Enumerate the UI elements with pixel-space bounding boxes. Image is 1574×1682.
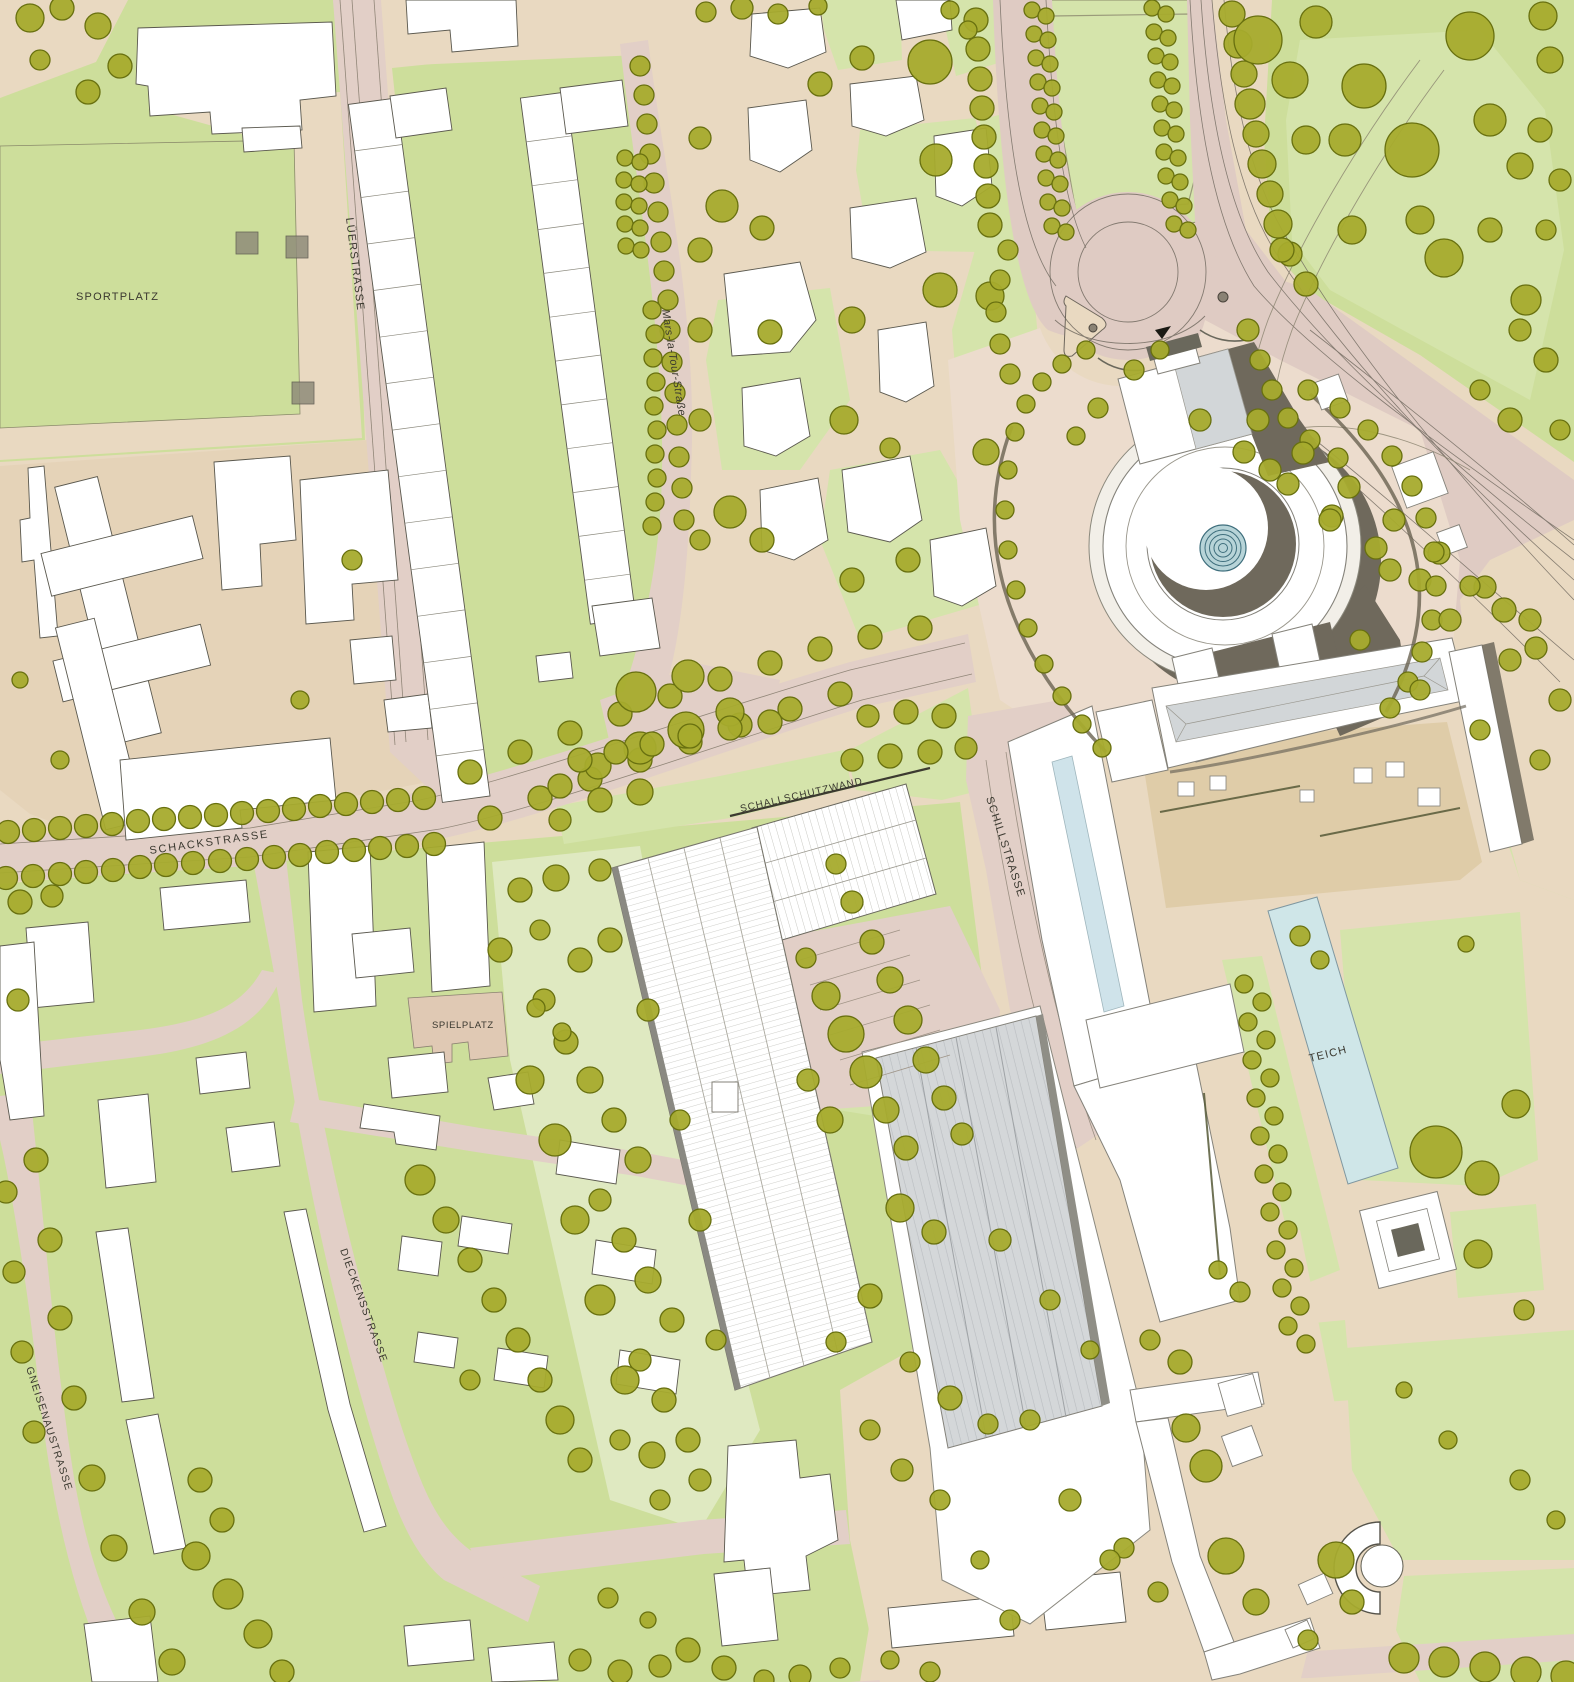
svg-text:SPIELPLATZ: SPIELPLATZ: [432, 1020, 494, 1031]
svg-text:SPORTPLATZ: SPORTPLATZ: [76, 291, 159, 303]
